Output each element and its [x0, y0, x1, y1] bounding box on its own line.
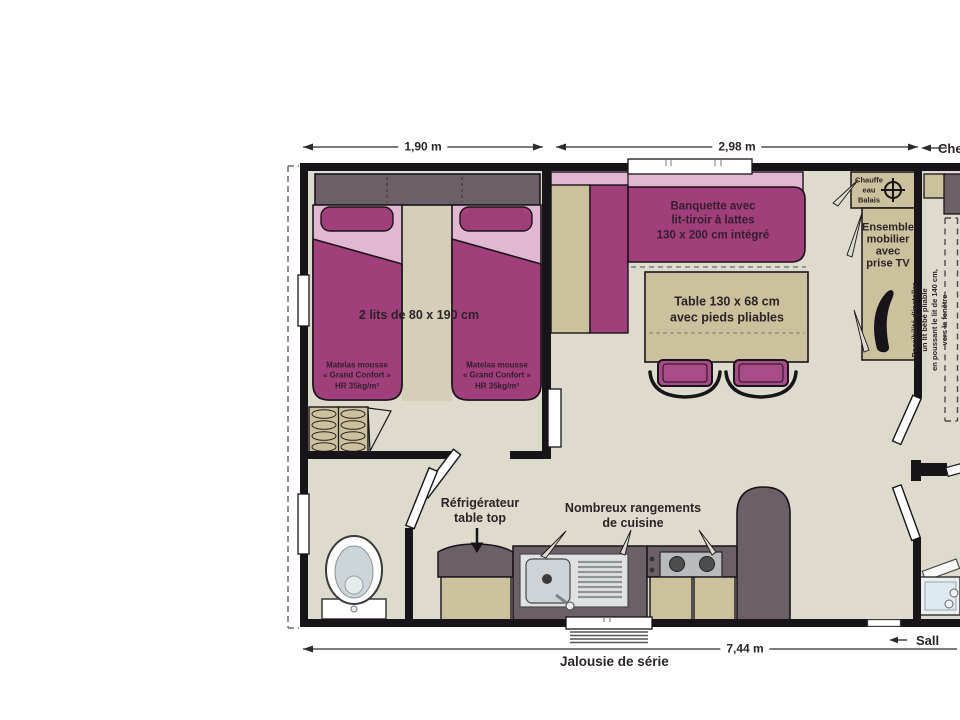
window-top: [628, 159, 752, 174]
water-heater-label: Chauffe eau Balais: [847, 175, 891, 204]
dimension-total: 7,44 m: [720, 642, 769, 657]
beds-label: 2 lits de 80 x 190 cm: [314, 308, 524, 324]
kitchen-peninsula: [737, 487, 790, 620]
sink-drain: [542, 574, 552, 584]
bedroom-aisle: [402, 205, 452, 401]
pillow-left: [321, 207, 393, 231]
window-left-wc: [298, 494, 309, 554]
wall-wc: [405, 528, 413, 627]
burner-icon: [670, 557, 685, 572]
dimension-room-left: 1,90 m: [398, 140, 447, 155]
toilet: [322, 536, 386, 619]
banquette-side-shelf: [551, 185, 590, 333]
dimension-living: 2,98 m: [712, 140, 761, 155]
left-arrow-icon: [921, 145, 931, 152]
jalousie-louvers: [570, 632, 648, 643]
left-arrow-icon: [889, 637, 898, 643]
awning-dashed-line: [288, 166, 299, 628]
door-gap-bedroom: [456, 451, 510, 459]
kitchen-stove-counter: [647, 546, 737, 577]
jalousie-note: Jalousie de série: [560, 654, 669, 671]
headboard-shelf: [315, 174, 540, 205]
banquette-seat-vertical: [590, 185, 628, 333]
kitchen-cabinets: [650, 577, 735, 620]
mattress-label-right: Matelas mousse « Grand Confort » HR 35kg…: [451, 360, 543, 391]
table-label: Table 130 x 68 cm avec pieds pliables: [652, 294, 802, 325]
kitchen-sink-unit: [513, 546, 647, 622]
wall-left: [300, 163, 308, 627]
wall-stub: [916, 463, 947, 476]
window-left-bedroom: [298, 275, 309, 326]
wall-door-panel: [548, 389, 561, 447]
kitchen-storage-label: Nombreux rangements de cuisine: [548, 501, 718, 531]
baby-bed-note: Possibilité d'installer un lit bébé plia…: [910, 218, 951, 423]
wall-opening-bottom: [868, 620, 900, 626]
burner-icon: [700, 557, 715, 572]
mattress-label-left: Matelas mousse « Grand Confort » HR 35kg…: [311, 360, 403, 391]
banquette-label: Banquette avec lit-tiroir à lattes 130 x…: [638, 199, 788, 242]
jalousie-window: [566, 617, 652, 629]
kitchen-fridge: [438, 544, 513, 620]
room-label-partial-bottom: Sall: [916, 633, 939, 649]
floorplan-page: 1,90 m 2,98 m 7,44 m Che Sall Jalousie d…: [0, 0, 960, 720]
pillow-right: [460, 207, 532, 231]
room-label-partial-top: Che: [938, 141, 960, 157]
wall-bathroom: [913, 538, 921, 627]
wall-bedroom-wc: [308, 451, 551, 459]
fridge-label: Réfrigérateur table top: [420, 496, 540, 526]
